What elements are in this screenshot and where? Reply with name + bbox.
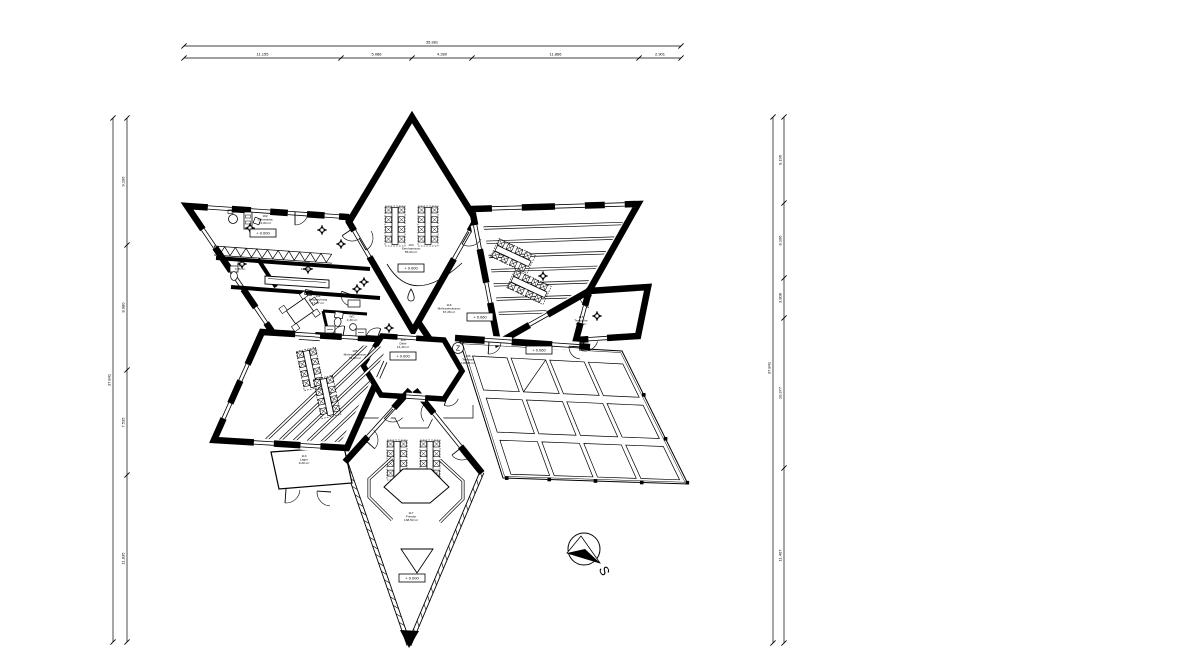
svg-text:+ 0.000: + 0.000 [256, 231, 270, 236]
dimension-value: 8.980 [121, 302, 126, 313]
dimension-value: 9.196 [121, 176, 126, 187]
svg-text:+ 0.000: + 0.000 [405, 576, 419, 581]
dimension-value: 8.106 [778, 235, 783, 246]
dimension-value: 2.901 [655, 52, 666, 57]
terrace-post [547, 478, 551, 482]
dimension-value: 35.381 [426, 40, 439, 45]
elevation-box-110: + 0.000 [390, 352, 416, 360]
round-table [229, 215, 238, 224]
plan-root: 102Sekretariat21,84 m²+ 0.000101WC3,95 m… [0, 0, 1180, 664]
elevation-box-106: + 0.060 [526, 346, 552, 354]
dimension-value: 37.841 [767, 361, 772, 374]
floor-plan-sheet: 102Sekretariat21,84 m²+ 0.000101WC3,95 m… [0, 0, 1180, 664]
dimension-value: 11.155 [257, 52, 270, 57]
dimension-value: 5.086 [371, 52, 382, 57]
dimension-value: 11.835 [121, 552, 126, 565]
sink [350, 324, 357, 331]
svg-text:+ 0.060: + 0.060 [532, 348, 546, 353]
dimension-value: 11.407 [778, 549, 783, 562]
dimension-value: 4.280 [437, 52, 448, 57]
dimension-value: 11.866 [550, 52, 563, 57]
elevation-box-104: + 0.000 [398, 264, 424, 272]
dimension-value: 9.196 [778, 154, 783, 165]
dimension-value: 37.841 [107, 373, 112, 386]
room-diele [363, 336, 462, 399]
terrace-post [594, 479, 598, 483]
section-marker-label: Z [456, 346, 461, 353]
lager-annex [271, 447, 352, 489]
floor-plan-drawing: 102Sekretariat21,84 m²+ 0.000101WC3,95 m… [0, 0, 1180, 664]
terrace-post [505, 476, 509, 480]
svg-text:+ 0.060: + 0.060 [473, 315, 487, 320]
terrace-post [642, 393, 646, 397]
elevation-box-117: + 0.000 [399, 574, 425, 582]
terrace-post [640, 481, 644, 485]
dimension-value: 10.377 [778, 386, 783, 399]
elevation-box-102: + 0.000 [250, 229, 276, 237]
terrace-post [664, 437, 668, 441]
svg-text:+ 0.000: + 0.000 [404, 266, 418, 271]
terrace-post [686, 481, 690, 485]
dimension-value: 3.808 [778, 292, 783, 303]
dimension-value: 7.535 [121, 417, 126, 428]
svg-text:+ 0.000: + 0.000 [396, 354, 410, 359]
elevation-box-116: + 0.060 [467, 313, 493, 321]
